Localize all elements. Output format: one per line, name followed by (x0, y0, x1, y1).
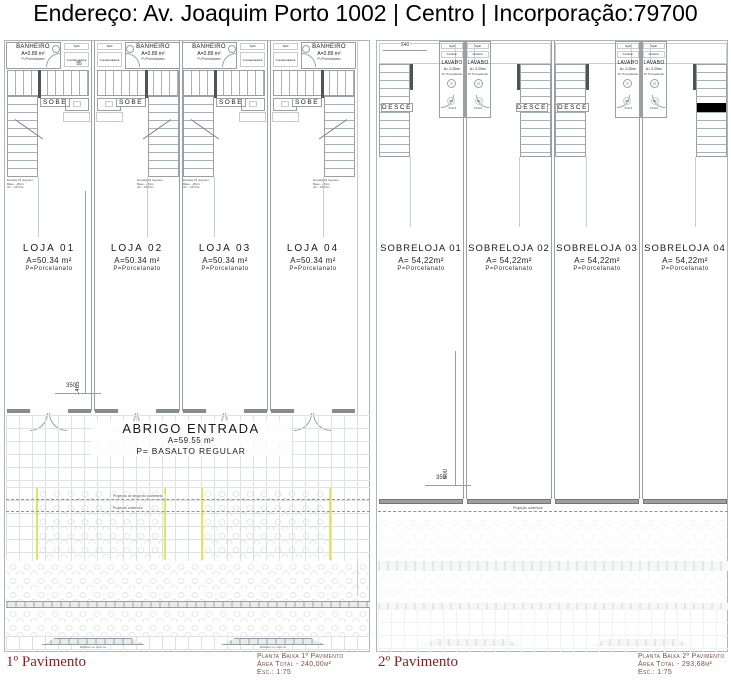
lavabo-area: A= 2,20m² (615, 67, 641, 71)
projection-label: Projeção do segundo pavimento (111, 494, 165, 498)
dim-line (85, 191, 86, 393)
lavabo-area: A= 2,20m² (439, 67, 465, 71)
unit-name: LOJA 02 (95, 243, 179, 254)
unit-floor: P=Porcelanato (271, 266, 355, 272)
dim-line (425, 485, 471, 486)
stair-note-line: Alt. - 18,5cm (313, 186, 355, 190)
meter-icon (105, 101, 113, 107)
dim-95: 95 (69, 61, 89, 67)
page-title: Endereço: Av. Joaquim Porto 1002 | Centr… (0, 0, 731, 27)
stair-direction-label: DESCE (381, 103, 413, 112)
front-wall (555, 499, 639, 504)
lavabo-floor: P= Porcelanato (615, 72, 641, 76)
lavabo-title: LAVABO (465, 60, 491, 66)
unit-name: LOJA 03 (183, 243, 267, 254)
curb-cut-ramp-faint (591, 639, 691, 646)
lavabo-title: LAVABO (615, 60, 641, 66)
lavabo-title: LAVABO (641, 60, 667, 66)
sink-drain-icon (450, 82, 453, 85)
split-unit: Split (617, 43, 639, 49)
stair-landing (97, 70, 179, 96)
stair-direction-label: SOBE (292, 98, 322, 107)
lavabo-area: A= 2,20m² (641, 67, 667, 71)
door-size: 70x210 (441, 107, 463, 110)
front-wall (244, 409, 267, 413)
front-wall (643, 499, 727, 504)
unit-area: A=50.34 m² (271, 256, 355, 265)
stair-side-wall (38, 177, 39, 237)
caption-line: Planta Baixa 2º Pavimento (638, 653, 730, 661)
stair-side-wall (147, 177, 148, 237)
condenser-box: Condens. (467, 51, 489, 58)
split-unit: Split (97, 43, 122, 50)
stair-direction-label: DESCE (557, 103, 589, 112)
front-wall (271, 409, 294, 413)
stair-note: Escada 19 degraus Base - 28cm Alt. - 18,… (137, 179, 179, 190)
meter-icon (249, 101, 257, 107)
unit-area: A=50.34 m² (95, 256, 179, 265)
dim-front: 350 (59, 383, 83, 389)
stair-wall (517, 64, 520, 90)
floorplan-sheet: Endereço: Av. Joaquim Porto 1002 | Centr… (0, 0, 731, 680)
sink-drain-icon (477, 82, 480, 85)
door-tag: P0 (475, 97, 483, 105)
first-floor-plan: BANHEIRO A=2.89 m² P=Porcelanato Split C… (4, 40, 370, 652)
stair-wall (214, 70, 217, 98)
unit-area: A=50.34 m² (183, 256, 267, 265)
unit-floor: P=Porcelanato (95, 266, 179, 272)
stair-note-line: Alt. - 18,5cm (137, 186, 179, 190)
lavabo-title: LAVABO (439, 60, 465, 66)
unit-floor: P=Porcelanato (183, 266, 267, 272)
projection-label: Projeção cobertura (111, 506, 145, 510)
bathroom-title: BANHEIRO (304, 44, 354, 50)
sink-drain-icon (653, 82, 656, 85)
split-unit: Split (64, 43, 89, 50)
stair-side-wall (519, 157, 520, 227)
curb-band-faint (378, 561, 728, 571)
lavabo-area: A= 2,20m² (465, 67, 491, 71)
stairs (148, 96, 179, 177)
dim-depth: 600 (443, 445, 453, 479)
door-tag: P0 (447, 97, 455, 105)
toilet-icon (302, 45, 310, 53)
counter (272, 112, 299, 122)
door-tag: P0 (651, 97, 659, 105)
front-wall (379, 499, 463, 504)
counter (63, 112, 90, 122)
stair-side-wall (695, 157, 696, 227)
stair-wall (410, 64, 413, 90)
stair-side-wall (323, 177, 324, 237)
split-unit: Split (441, 43, 463, 49)
stair-side-wall (586, 157, 587, 227)
projection-line (6, 499, 370, 500)
entry-title: ABRIGO ENTRADA (91, 421, 291, 436)
second-floor-caption: Planta Baixa 2º Pavimento Área Total - 2… (638, 653, 730, 679)
stair-direction-label: DESCE (516, 103, 548, 112)
caption-line: Planta Baixa 1º Pavimento (257, 653, 367, 661)
unit-floor: P=Porcelanato (7, 266, 91, 272)
counter (239, 112, 266, 122)
lavabo-floor: P= Porcelanato (465, 72, 491, 76)
front-wall (156, 409, 179, 413)
unit-area: A= 54,22m² (554, 256, 640, 265)
toilet-icon (126, 45, 134, 53)
stair-note: Escada 19 degraus Base - 28cm Alt. - 18,… (183, 179, 225, 190)
sink-drain-icon (626, 82, 629, 85)
unit-name: SOBRELOJA 01 (378, 243, 464, 254)
counter (96, 112, 123, 122)
stair-note-line: Alt. - 18,5cm (183, 186, 225, 190)
sidewalk-cobble-faint (378, 517, 728, 561)
bathroom-title: BANHEIRO (8, 44, 58, 50)
bathroom-title: BANHEIRO (184, 44, 234, 50)
curb-cut-ramp (221, 638, 325, 645)
split-unit: Split (467, 43, 489, 49)
projection-label: Projeção cobertura (511, 506, 545, 510)
second-floor-plan: 240 DESCE DESCE Split Split Condens. Con… (376, 40, 728, 652)
stair-wall (145, 70, 148, 98)
lavabo-floor: P= Porcelanato (439, 72, 465, 76)
sidewalk-cobble-faint (378, 571, 728, 603)
stairs (183, 96, 214, 177)
party-wall (91, 41, 95, 411)
unit-floor: P=Porcelanato (378, 266, 464, 272)
first-floor-caption: Planta Baixa 1º Pavimento Área Total - 2… (257, 653, 367, 679)
door-size: 70x210 (467, 107, 489, 110)
curb-cut-ramp (41, 638, 145, 645)
front-wall (332, 409, 355, 413)
sidewalk-cobble (6, 561, 370, 601)
unit-area: A= 54,22m² (642, 256, 728, 265)
projection-line (6, 511, 370, 512)
unit-floor: P=Porcelanato (642, 266, 728, 272)
meter-icon (73, 101, 81, 107)
split-unit: Split (240, 43, 265, 50)
stair-wall (693, 64, 696, 90)
dim-front: 350 (429, 475, 453, 481)
stair-wall (586, 64, 589, 90)
curb-band (6, 601, 370, 608)
toilet-icon (52, 45, 60, 53)
condenser-box: Condens. (617, 51, 639, 58)
bathroom-title: BANHEIRO (128, 44, 178, 50)
curb-cut-ramp-faint (421, 639, 521, 646)
entry-floor: P= BASALTO REGULAR (91, 446, 291, 456)
stair-landing (273, 70, 355, 96)
unit-name: LOJA 01 (7, 243, 91, 254)
condenser-box: Condensadora (97, 52, 122, 67)
toilet-icon (228, 45, 236, 53)
door-size: 70x210 (617, 107, 639, 110)
projection-line (378, 511, 728, 512)
stair-wall (38, 70, 41, 98)
second-floor-name: 2º Pavimento (378, 654, 458, 671)
curb-cut-label: Rebaixo no meio fio (221, 645, 325, 649)
unit-name: LOJA 04 (271, 243, 355, 254)
caption-line: Esc.: 1:75 (638, 669, 730, 677)
stairs (324, 96, 355, 177)
sidewalk-cobble (6, 608, 370, 636)
unit-area: A=50.34 m² (7, 256, 91, 265)
stair-note: Escada 19 degraus Base - 28cm Alt. - 18,… (313, 179, 355, 190)
front-wall (467, 499, 551, 504)
unit-floor: P=Porcelanato (554, 266, 640, 272)
caption-line: Esc.: 1:75 (257, 669, 367, 677)
unit-area: A= 54,22m² (378, 256, 464, 265)
stair-landing (183, 70, 265, 96)
unit-name: SOBRELOJA 03 (554, 243, 640, 254)
lavabo-floor: P= Porcelanato (641, 72, 667, 76)
stair-direction-label: SOBE (116, 98, 146, 107)
stair-wall (321, 70, 324, 98)
front-wall (68, 409, 91, 413)
party-wall (267, 41, 271, 411)
stair-side-wall (410, 157, 411, 227)
split-unit: Split (643, 43, 665, 49)
first-floor-name: 1º Pavimento (6, 654, 86, 671)
stairs (7, 96, 38, 177)
front-wall (95, 409, 118, 413)
caption-line: Área Total - 240,00m² (257, 661, 367, 669)
stair-note: Escada 19 degraus Base - 28cm Alt. - 18,… (7, 179, 49, 190)
condenser-box: Condensadora (273, 52, 298, 67)
door-size: 70x210 (643, 107, 665, 110)
condenser-box: Condens. (643, 51, 665, 58)
unit-area: A= 54,22m² (466, 256, 552, 265)
split-unit: Split (273, 43, 298, 50)
dim-line (455, 351, 456, 485)
door-tag: P0 (623, 97, 631, 105)
entry-area: A=59.55 m² (91, 436, 291, 445)
curb-cut-label: Rebaixo no meio fio (41, 645, 145, 649)
condenser-box: Condensadora (240, 52, 265, 67)
stair-side-wall (214, 177, 215, 237)
stair-landing (7, 70, 89, 96)
meter-icon (281, 101, 289, 107)
unit-name: SOBRELOJA 04 (642, 243, 728, 254)
front-wall (183, 409, 206, 413)
unit-floor: P=Porcelanato (466, 266, 552, 272)
front-wall (7, 409, 30, 413)
dim-line (55, 393, 101, 394)
unit-name: SOBRELOJA 02 (466, 243, 552, 254)
caption-line: Área Total - 293,68m² (638, 661, 730, 669)
condenser-box: Condens. (441, 51, 463, 58)
stair-label-block (697, 103, 726, 112)
stair-note-line: Alt. - 18,5cm (7, 186, 49, 190)
